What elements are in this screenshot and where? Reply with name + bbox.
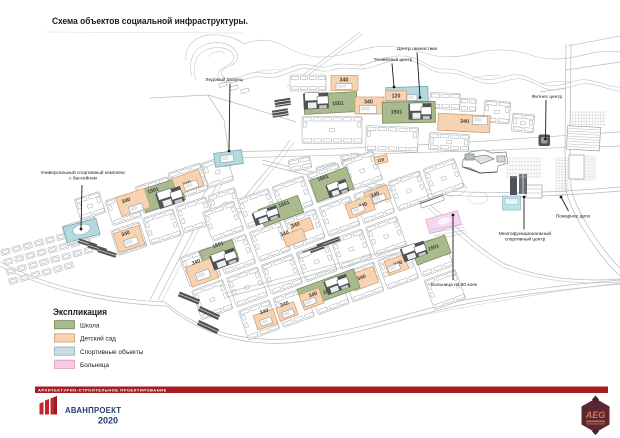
svg-text:спортивный центр: спортивный центр — [505, 236, 546, 243]
svg-text:Больница: Больница — [80, 362, 109, 369]
svg-text:Многофункциональный: Многофункциональный — [499, 230, 551, 237]
svg-text:Схема объектов социальной инфр: Схема объектов социальной инфраструктуры… — [52, 16, 248, 26]
svg-text:Теннисный центр: Теннисный центр — [374, 56, 413, 63]
svg-text:1501: 1501 — [332, 101, 344, 108]
svg-text:Универсальный спортивный компл: Универсальный спортивный комплекс — [41, 169, 127, 176]
svg-text:Спортивные объекты: Спортивные объекты — [80, 348, 144, 356]
svg-text:2020: 2020 — [98, 416, 118, 426]
svg-text:1501: 1501 — [391, 109, 403, 115]
svg-text:Больница на 60 коек: Больница на 60 коек — [431, 282, 478, 288]
svg-text:Фитнес центр: Фитнес центр — [532, 94, 563, 100]
svg-text:340: 340 — [340, 78, 349, 84]
svg-text:Экспликация: Экспликация — [53, 307, 107, 317]
svg-text:Пожарное депо: Пожарное депо — [556, 214, 591, 220]
svg-text:Ледовый дворец: Ледовый дворец — [205, 76, 242, 83]
svg-text:Школа: Школа — [80, 322, 100, 329]
svg-text:Центр гимнастики: Центр гимнастики — [397, 46, 437, 52]
svg-text:Детский сад: Детский сад — [80, 335, 116, 343]
svg-text:340: 340 — [460, 119, 469, 125]
svg-text:с бассейном: с бассейном — [69, 175, 97, 182]
svg-text:АВАНПРОЕКТ: АВАНПРОЕКТ — [65, 406, 121, 415]
svg-text:АРХИТЕКТУРНО-СТРОИТЕЛЬНОЕ ПРОЕ: АРХИТЕКТУРНО-СТРОИТЕЛЬНОЕ ПРОЕКТИРОВАНИЕ — [38, 388, 167, 393]
svg-text:340: 340 — [364, 100, 373, 106]
svg-text:AEG: AEG — [585, 410, 606, 420]
svg-text:120: 120 — [392, 93, 401, 99]
